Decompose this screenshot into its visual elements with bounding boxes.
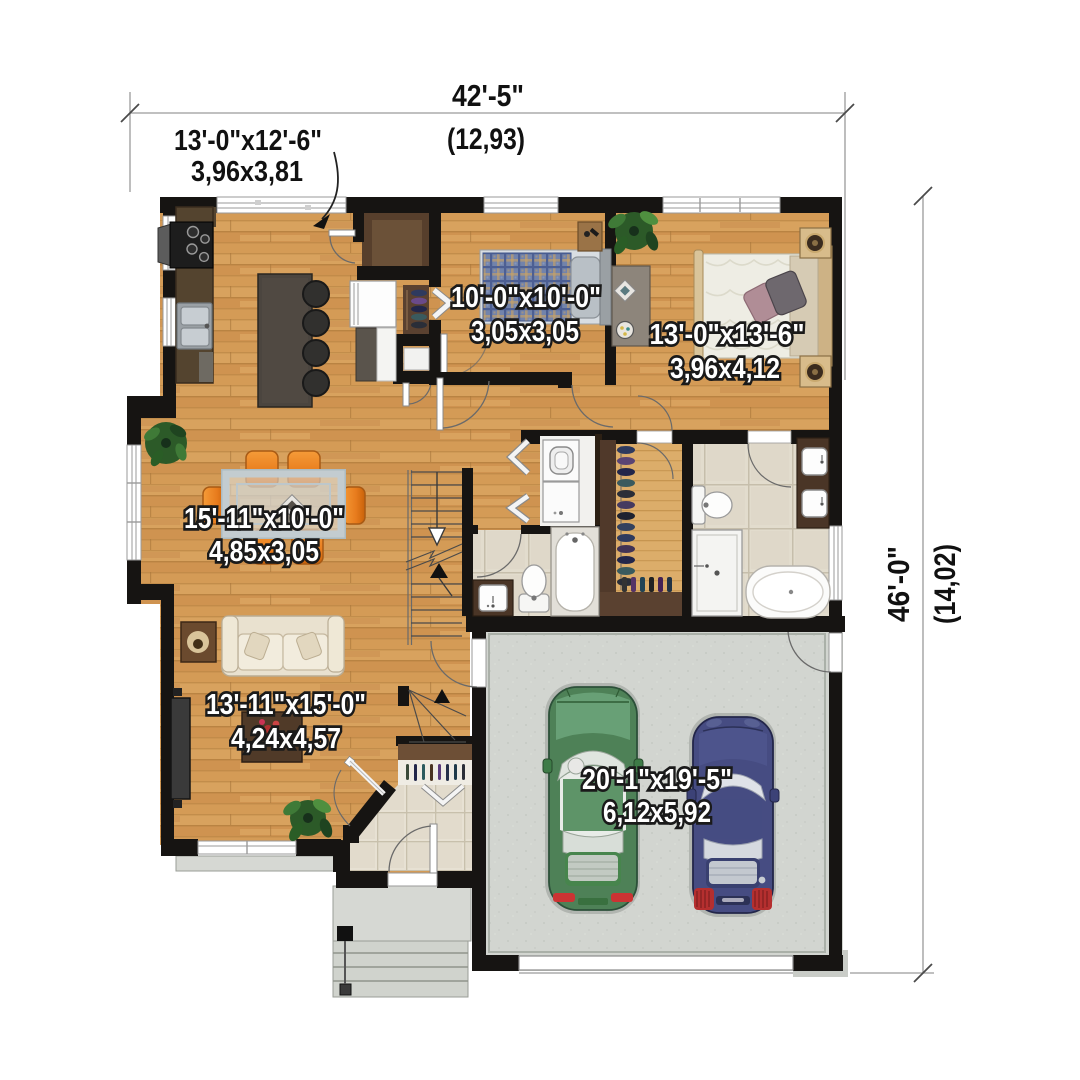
svg-text:(14,02): (14,02) bbox=[929, 544, 962, 624]
svg-text:13'-0"x12'-6": 13'-0"x12'-6" bbox=[174, 125, 322, 157]
svg-text:3,05x3,05: 3,05x3,05 bbox=[471, 316, 579, 348]
svg-text:3,96x4,12: 3,96x4,12 bbox=[670, 353, 780, 385]
svg-text:15'-11"x10'-0": 15'-11"x10'-0" bbox=[184, 503, 344, 535]
svg-text:46'-0": 46'-0" bbox=[881, 546, 916, 622]
svg-text:13'-0"x13'-6": 13'-0"x13'-6" bbox=[650, 319, 805, 351]
svg-text:3,96x3,81: 3,96x3,81 bbox=[191, 156, 303, 188]
svg-text:4,85x3,05: 4,85x3,05 bbox=[209, 536, 319, 568]
svg-text:13'-11"x15'-0": 13'-11"x15'-0" bbox=[206, 689, 366, 721]
svg-text:10'-0"x10'-0": 10'-0"x10'-0" bbox=[451, 282, 601, 314]
svg-text:6,12x5,92: 6,12x5,92 bbox=[603, 797, 711, 829]
svg-text:4,24x4,57: 4,24x4,57 bbox=[231, 723, 341, 755]
svg-text:20'-1"x19'-5": 20'-1"x19'-5" bbox=[582, 764, 732, 796]
svg-text:(12,93): (12,93) bbox=[447, 123, 525, 156]
svg-text:42'-5": 42'-5" bbox=[452, 78, 524, 113]
